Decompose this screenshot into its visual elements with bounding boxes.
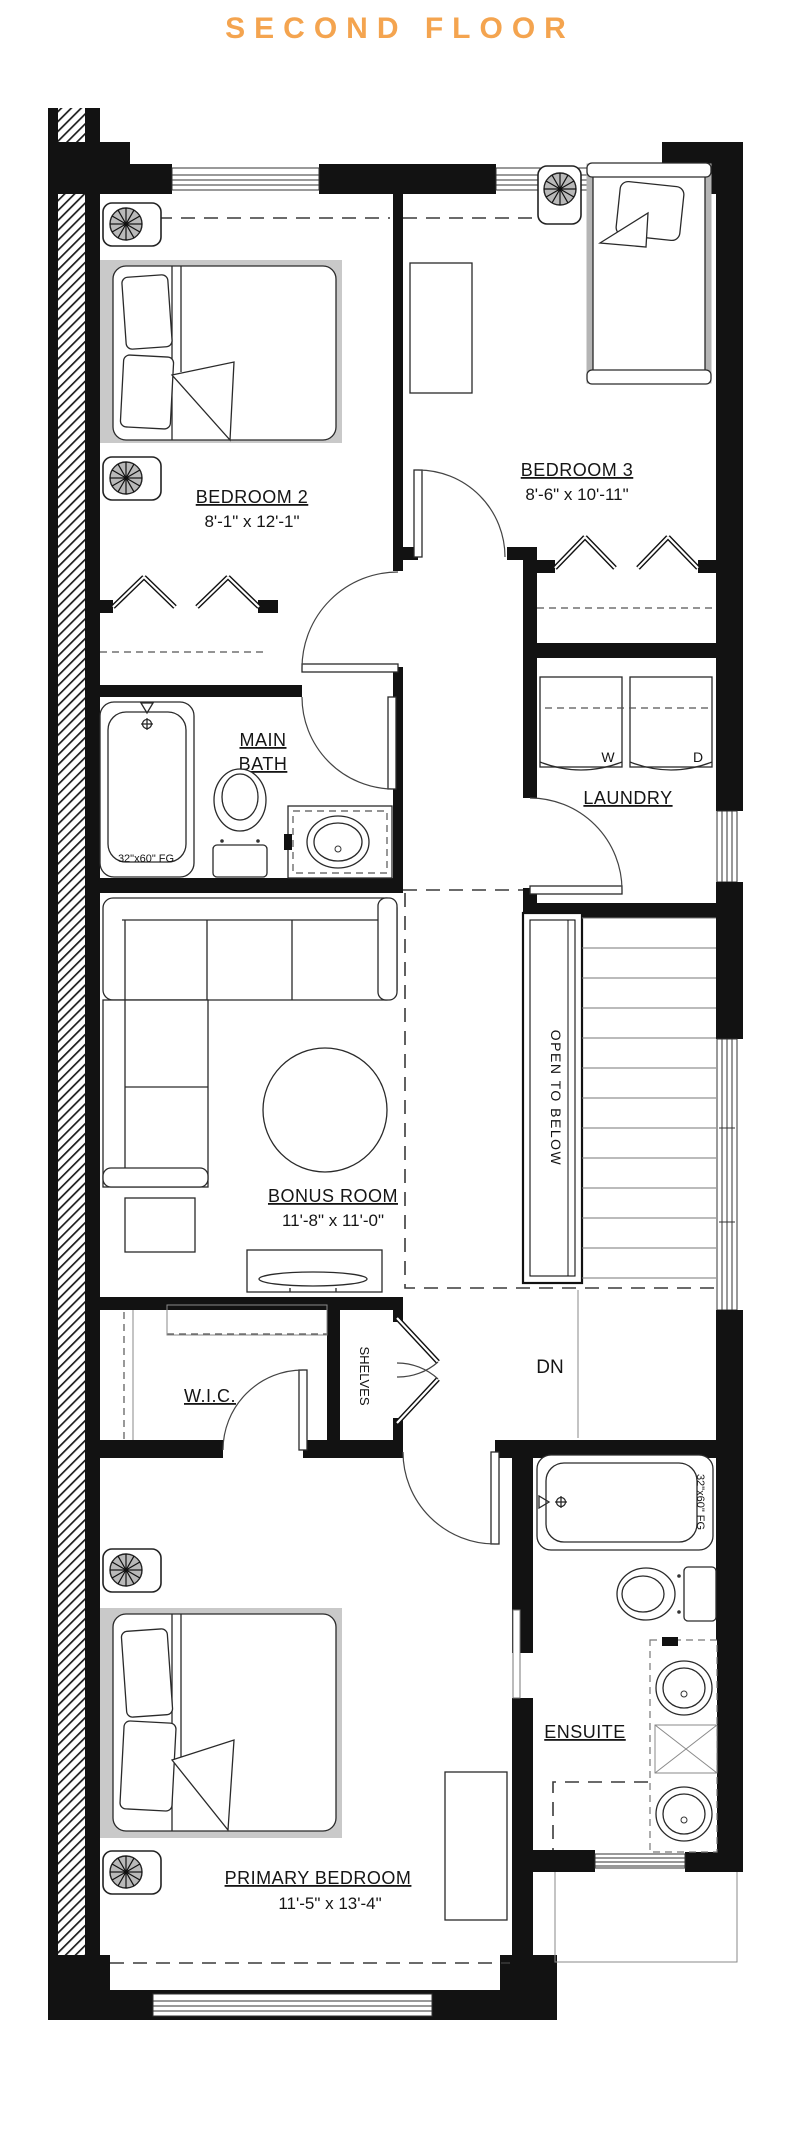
main-bath-label-1: MAIN [240,730,287,750]
bedroom2-label: BEDROOM 2 [196,487,309,507]
ensuite-room: 32"x60" FG ENSUITE [513,1455,717,1852]
bathtub [100,702,194,877]
toilet [213,769,267,877]
ceiling-fan-icon [103,1549,161,1592]
faucet-icon [284,834,292,850]
laundry-room: W D LAUNDRY [530,677,712,894]
bed-double [100,260,342,443]
ensuite-bathtub [537,1455,713,1550]
bedroom2-dims: 8'-1" x 12'-1" [204,512,299,531]
bedroom3-closet-bifold-doors [555,537,698,568]
round-rug [263,1048,387,1172]
bed-twin [587,163,711,384]
wic-door [223,1370,307,1450]
stairwell: OPEN TO BELOW DN [523,913,716,1438]
side-table [125,1198,195,1252]
shelves-label: SHELVES [357,1346,372,1405]
ensuite-vanity [650,1637,717,1852]
floorplan-page: { "title": "SECOND FLOOR", "accent_color… [0,0,800,2150]
ensuite-tub-label: 32"x60" FG [694,1474,706,1530]
primary-bedroom-dims: 11'-5" x 13'-4" [278,1894,381,1913]
bedroom2-door [302,572,398,672]
primary-bedroom-door [403,1452,499,1544]
shelves-closet-double-doors [397,1318,438,1423]
roof-outline-below [555,1872,737,1962]
ensuite-window [595,1854,685,1868]
washer-label: W [601,749,615,765]
main-bath-room: 32"x60" FG MAIN BATH [100,697,396,878]
wic-label: W.I.C. [184,1386,236,1406]
dresser [445,1772,507,1920]
main-bath-tub-label: 32"x60" FG [118,853,174,865]
stairwell-window [717,1039,737,1310]
bedroom3-room: BEDROOM 3 8'-6" x 10'-11" [410,163,711,568]
ensuite-pocket-door [513,1610,520,1698]
stairs-down-label: DN [536,1357,563,1378]
primary-bedroom-label: PRIMARY BEDROOM [225,1868,412,1888]
bedroom3-dims: 8'-6" x 10'-11" [525,485,628,504]
laundry-window [717,811,737,882]
laundry-label: LAUNDRY [583,788,672,808]
wic-room: W.I.C. [133,1305,327,1450]
floorplan-svg: BEDROOM 2 8'-1" x 12'-1" BEDROOM 3 8'-6"… [0,0,800,2150]
main-bath-door [302,697,396,789]
ensuite-toilet [617,1567,716,1621]
shelves-closet: SHELVES [357,1318,438,1423]
ensuite-label: ENSUITE [544,1722,626,1742]
ceiling-fan-icon [103,457,161,500]
shower-outline [553,1782,648,1850]
dresser [410,263,472,393]
faucet-icon [662,1637,678,1646]
bonus-room-dims: 11'-8" x 11'-0" [282,1211,384,1230]
ceiling-fan-icon [538,166,581,224]
bedroom2-window [172,168,319,190]
primary-bedroom-room: PRIMARY BEDROOM 11'-5" x 13'-4" [100,1452,507,1920]
laundry-door [530,798,622,894]
ceiling-fan-icon [103,203,161,246]
party-wall-hatch [58,108,85,2020]
tv-console [247,1250,382,1292]
bedroom3-label: BEDROOM 3 [521,460,634,480]
vanity-sink [284,806,392,878]
bedroom2-closet-bifold-doors [113,577,259,607]
bedroom2-room: BEDROOM 2 8'-1" x 12'-1" [100,203,398,672]
bed-queen [100,1608,342,1838]
bonus-room-label: BONUS ROOM [268,1186,398,1206]
bonus-room: BONUS ROOM 11'-8" x 11'-0" [103,898,398,1292]
primary-bedroom-window [153,1994,432,2016]
stair-treads [582,918,716,1278]
ceiling-fan-icon [103,1851,161,1894]
bedroom3-door [414,470,505,557]
dryer-label: D [693,749,703,765]
open-to-below-label: OPEN TO BELOW [548,1030,564,1166]
